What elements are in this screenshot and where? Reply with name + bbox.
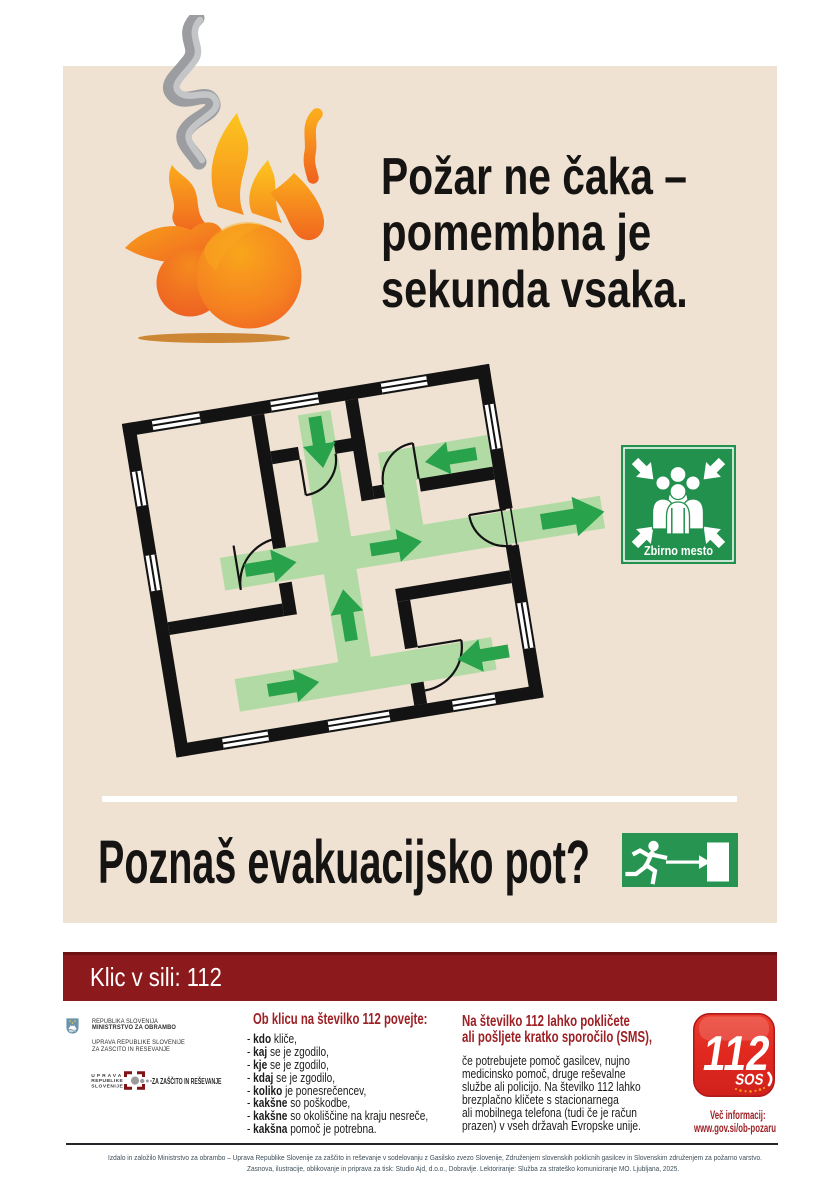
svg-text:SOS: SOS	[734, 1072, 765, 1089]
svg-text:SLOVENIJE: SLOVENIJE	[91, 1084, 123, 1090]
svg-text:Zbirno mesto: Zbirno mesto	[644, 544, 713, 558]
svg-text:ZA ZAŠČITO IN REŠEVANJE: ZA ZAŠČITO IN REŠEVANJE	[152, 1075, 222, 1086]
svg-text:REPUBLIKE: REPUBLIKE	[91, 1078, 123, 1084]
